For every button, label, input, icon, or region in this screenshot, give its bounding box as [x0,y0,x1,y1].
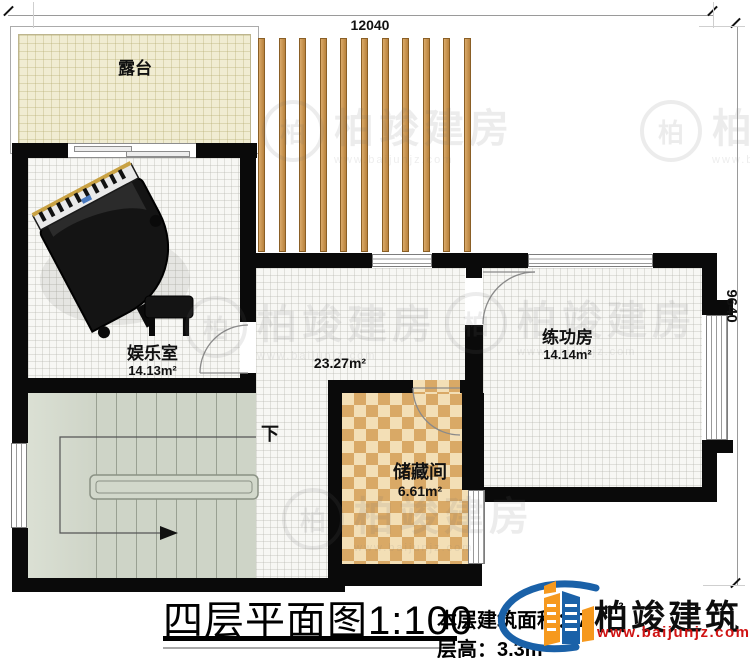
stair-down-label: 下 [258,424,282,445]
watermark: 柏柏竣建房www.baijunjz.com [185,292,437,362]
floor-area-line: 本层建筑面积：7 [437,604,588,633]
extension-line [713,2,714,28]
sliding-door-panel [126,151,190,157]
title-underline [163,636,457,641]
floor-height-label: 层高： [437,639,497,658]
room-name: 练功房 [520,328,615,348]
room-area: 23.27m² [300,355,380,371]
floor-plan-canvas: 12040 9640 [0,0,750,658]
wall [702,268,717,300]
floor-area-value: 7 [577,610,588,632]
sliding-door-panel [74,146,132,152]
company-logo-url: www.baijunjz.com [597,624,750,641]
terrace-floor [18,34,251,146]
floor-height-line: 层高：3.3m [437,633,543,658]
wall [466,268,482,278]
floor-height-value: 3.3m [497,639,543,658]
room-name: 储藏间 [378,462,462,483]
watermark: 柏柏竣建房www.baijunjz.com [640,96,750,166]
wall [332,564,482,586]
wall [28,143,68,158]
extension-line [33,2,34,28]
room-name: 露台 [100,59,170,79]
wall [332,380,413,393]
watermark-text: 柏竣建房 [712,96,750,154]
dimension-tick [730,578,741,589]
practice-label: 练功房 14.14m² [520,328,615,362]
terrace-label: 露台 [100,59,170,79]
wall [702,440,733,453]
floor-area-label: 本层建筑面积： [437,610,577,632]
wall [462,393,484,490]
wall [196,143,257,158]
watermark: 柏柏竣建房www.baijunjz.com [262,96,514,166]
wall [432,253,528,268]
storage-door-floor [413,380,462,394]
entertainment-label: 娱乐室 14.13m² [105,344,200,378]
room-name: 娱乐室 [105,344,200,364]
room-area: 14.13m² [105,364,200,379]
room-area: 6.61m² [378,483,462,499]
right-dimension-text: 9640 [724,266,740,346]
watermark-badge: 柏 [262,100,324,162]
watermark-url: www.baijunjz.com [334,154,514,166]
room-area: 14.14m² [520,348,615,363]
watermark-url: www.baijunjz.com [354,542,534,554]
top-dimension-text: 12040 [320,17,420,33]
watermark-badge: 柏 [640,100,702,162]
wall [12,143,28,443]
extension-line [699,26,745,27]
storage-label: 储藏间 6.61m² [378,462,462,499]
watermark-text: 柏竣建房 [257,292,437,350]
sliding-door [68,143,196,158]
wall [12,378,256,393]
wall [460,380,483,393]
stair-treads [96,393,256,578]
stair-landing [26,393,96,578]
watermark-badge: 柏 [445,292,507,354]
title-underline-secondary [163,647,449,649]
hall-area-label: 23.27m² [300,355,380,371]
wall [252,253,372,268]
window [372,254,432,267]
window [528,254,653,267]
watermark-badge: 柏 [282,488,344,550]
wall [653,253,717,268]
watermark-text: 柏竣建房 [334,96,514,154]
extension-line [703,585,745,586]
watermark-url: www.baijunjz.com [712,154,750,166]
window [11,443,27,528]
top-dimension-line [8,15,713,16]
